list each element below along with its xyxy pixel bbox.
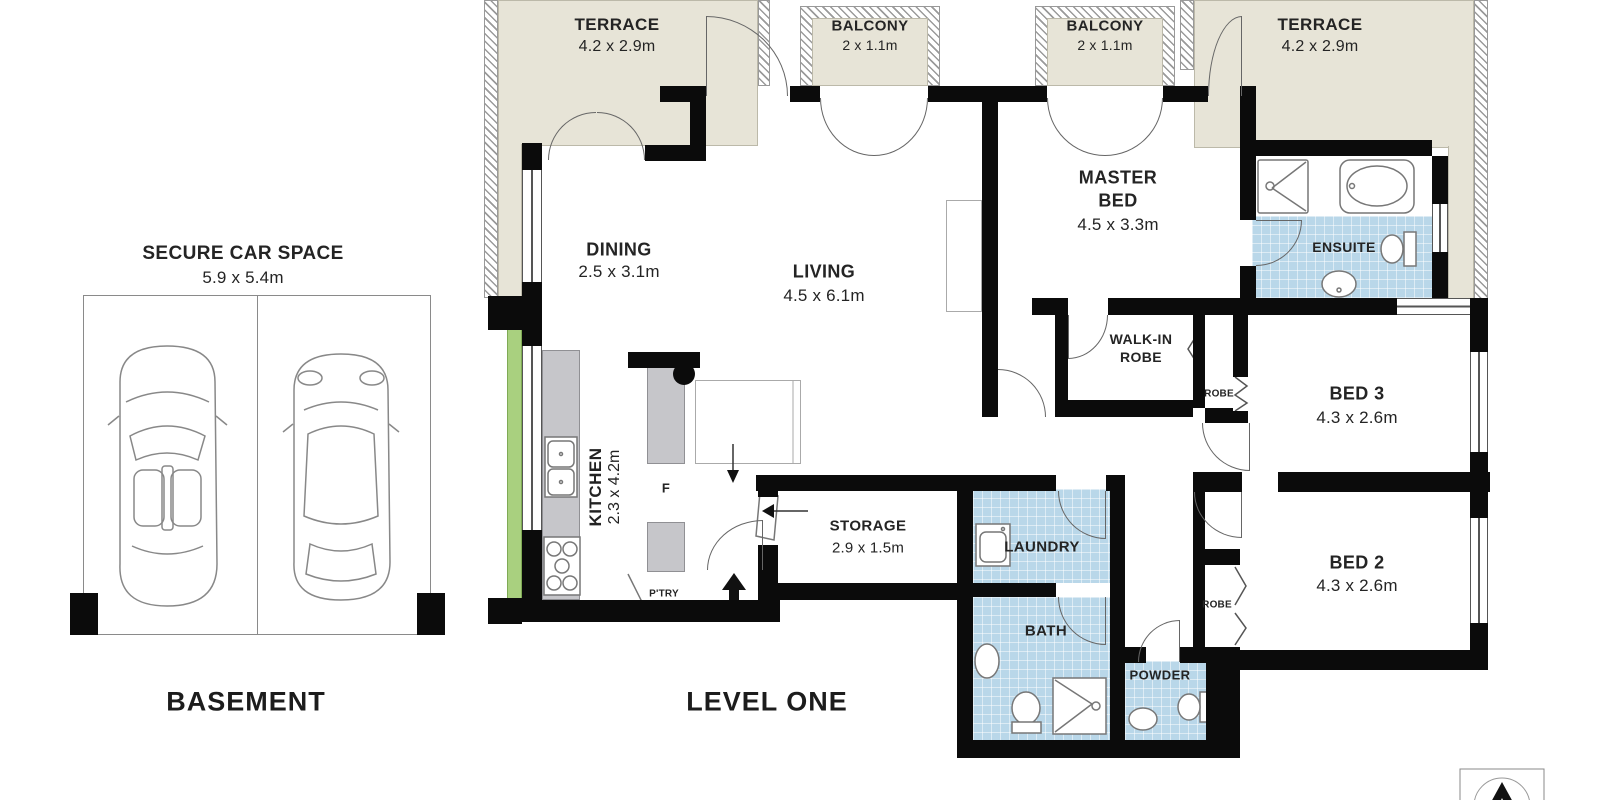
balcony-right-dims: 2 x 1.1m [1077,37,1132,53]
wall [758,475,778,497]
wall [1237,650,1488,670]
wall [1233,315,1248,377]
storage-label: STORAGE [830,518,907,535]
robe1-label: ROBE [1204,389,1234,400]
basement-caption: BASEMENT [166,687,326,718]
wall [790,86,820,102]
robe2-label: ROBE [1202,600,1232,611]
wall [1163,86,1208,102]
terrace-right-label: TERRACE [1278,15,1363,35]
kitchen-label: KITCHEN [586,377,606,597]
living-label: LIVING [793,262,855,283]
wall-corner-block [488,296,522,330]
window [1397,298,1470,315]
terrace-left-label: TERRACE [575,15,660,35]
wall [973,583,1056,597]
wall [1206,650,1240,758]
wall [1240,156,1256,220]
fridge-label: F [662,481,670,496]
wall [1032,298,1068,315]
wall [1193,549,1240,565]
wall [957,583,973,758]
wall [1108,298,1240,315]
car-coupe [282,348,400,606]
powder-label: POWDER [1130,668,1191,683]
car-space-divider [257,296,258,634]
wall [522,530,542,602]
ensuite-label: ENSUITE [1312,239,1375,255]
wall [488,600,780,622]
wall [1193,472,1242,492]
wall [1233,411,1248,423]
wall [957,740,1233,758]
wall [1432,156,1448,204]
bed2-label: BED 2 [1329,553,1384,574]
terrace-left-dims: 4.2 x 2.9m [579,38,656,56]
wall-corner-block [417,593,445,635]
wall [1432,252,1448,302]
wall [1240,298,1397,315]
wall [768,583,968,600]
wall [522,143,542,170]
level-one-caption: LEVEL ONE [686,687,848,718]
bed3-label: BED 3 [1329,384,1384,405]
wall [1470,452,1488,492]
bath-label: BATH [1025,623,1067,640]
basement-dims: 5.9 x 5.4m [202,268,283,288]
master-bed-label2: BED [1098,191,1137,212]
bed3-dims: 4.3 x 2.6m [1316,408,1397,428]
master-bed-dims: 4.5 x 3.3m [1077,215,1158,235]
wall [1205,408,1233,423]
dining-label: DINING [586,240,651,261]
storage-dims: 2.9 x 1.5m [832,540,904,557]
wall [756,475,1056,491]
car-convertible [105,338,230,613]
window [1470,352,1488,452]
dining-dims: 2.5 x 3.1m [578,262,659,282]
wall-corner-block [70,593,98,635]
wall [1180,647,1193,663]
bed2-dims: 4.3 x 2.6m [1316,576,1397,596]
window [1432,204,1448,252]
balcony-left-label: BALCONY [832,18,909,35]
master-bed-label1: MASTER [1079,168,1157,189]
balcony-right-label: BALCONY [1067,18,1144,35]
wall [1110,475,1125,740]
wall [1470,315,1488,352]
terrace-right-dims: 4.2 x 2.9m [1282,38,1359,56]
window [522,170,542,282]
wall [1055,400,1193,417]
north-compass-icon [1459,768,1545,800]
kitchen-dims: 2.3 x 4.2m [606,377,624,597]
wall [1240,266,1256,298]
laundry-label: LAUNDRY [1004,539,1080,556]
walk-in-robe-label2: ROBE [1120,349,1162,365]
wall [928,86,1047,102]
wall [982,102,998,417]
living-dims: 4.5 x 6.1m [783,286,864,306]
wall [1278,472,1490,492]
pantry-label: P'TRY [649,589,679,600]
floorplan-page: { "basement": { "title": "SECURE CAR SPA… [0,0,1600,800]
balcony-left-dims: 2 x 1.1m [842,37,897,53]
wall [522,282,542,346]
walk-in-robe-label1: WALK-IN [1110,331,1173,347]
window [1470,518,1488,623]
basement-title: SECURE CAR SPACE [142,243,343,265]
wall [690,96,706,161]
wall [957,475,973,600]
wall [628,352,700,368]
window [522,346,542,530]
wall [1470,492,1488,518]
wall [1240,140,1432,156]
kitchen-label-block: KITCHEN 2.3 x 4.2m [586,377,630,597]
wall [1470,298,1488,315]
